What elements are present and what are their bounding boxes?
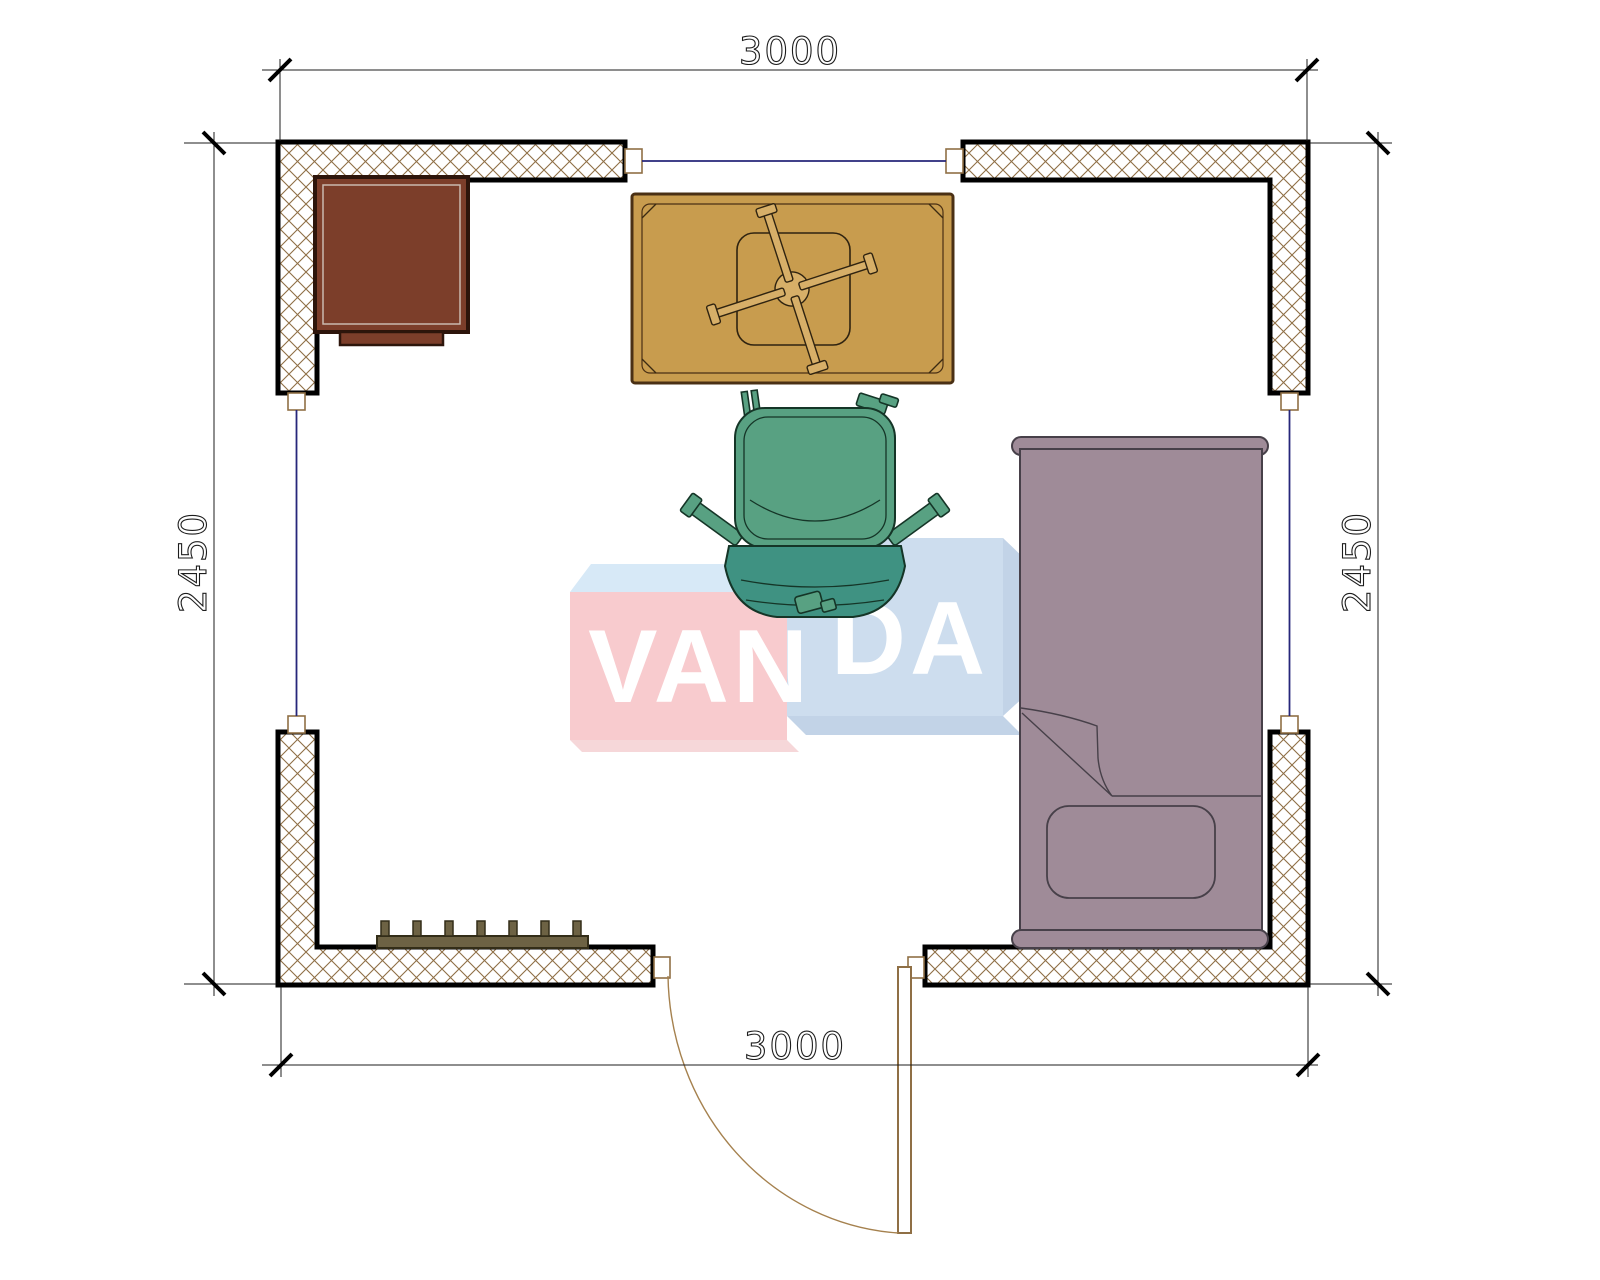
window-jamb — [1281, 393, 1298, 410]
dimension-value-top: 3000 — [739, 30, 841, 73]
door-swing-arc — [668, 976, 898, 1233]
radiator-fin — [477, 921, 485, 936]
radiator-fin — [573, 921, 581, 936]
dimension-value-right: 2450 — [1336, 511, 1379, 613]
office-chair-seat — [735, 408, 895, 548]
radiator-fin — [509, 921, 517, 936]
wall-top-right — [963, 142, 1308, 393]
dimension-value-bottom: 3000 — [744, 1025, 846, 1068]
window-jamb — [625, 149, 642, 173]
bed — [1012, 437, 1268, 948]
floor-plan-canvas: VAN DA — [0, 0, 1600, 1280]
radiator-bar — [377, 936, 588, 948]
dimension-left: 2450 — [172, 132, 276, 996]
cabinet-tab — [340, 332, 443, 345]
furniture — [315, 177, 1268, 948]
dimension-bottom: 3000 — [262, 987, 1319, 1077]
table — [632, 179, 953, 398]
watermark-pink-bottom — [570, 740, 799, 752]
radiator-fin — [445, 921, 453, 936]
bed-pillow — [1047, 806, 1215, 898]
cabinet — [315, 177, 468, 345]
radiator-fin — [381, 921, 389, 936]
dimension-right: 2450 — [1310, 132, 1392, 996]
window-jamb — [946, 149, 963, 173]
cabinet-body — [315, 177, 468, 332]
window-jamb — [288, 716, 305, 733]
radiator — [377, 921, 588, 948]
door-leaf — [898, 967, 911, 1233]
radiator-fin — [541, 921, 549, 936]
bed-footboard — [1012, 930, 1268, 948]
window-jamb — [1281, 716, 1298, 733]
dimension-top: 3000 — [262, 30, 1318, 141]
radiator-fin — [413, 921, 421, 936]
door-jamb — [654, 957, 670, 978]
window-jamb — [288, 393, 305, 410]
floor-plan-page: VAN DA — [0, 0, 1600, 1280]
dimension-value-left: 2450 — [172, 511, 215, 613]
watermark-text-van: VAN — [588, 609, 812, 725]
watermark-blue-bottom — [787, 716, 1022, 735]
